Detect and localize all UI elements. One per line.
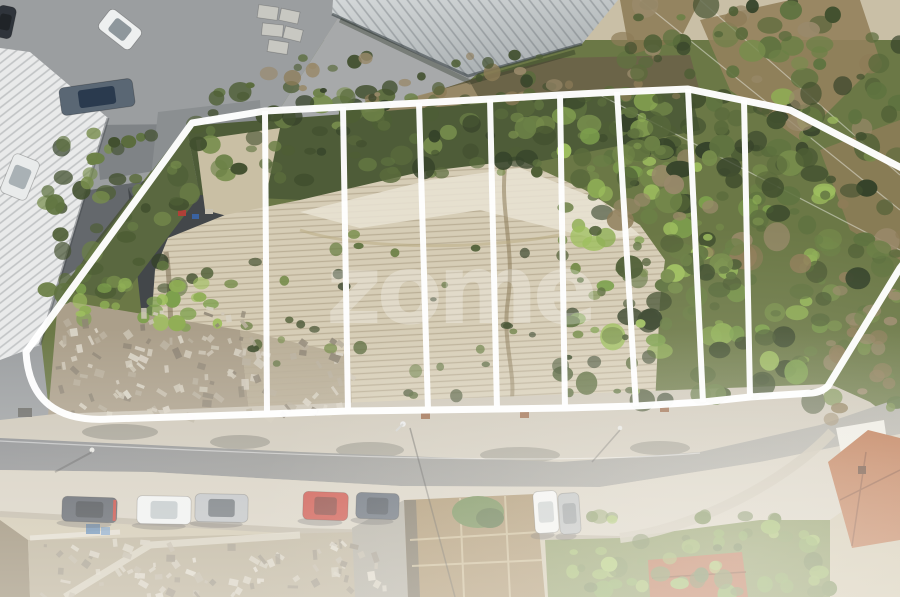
sun-haze <box>0 0 900 597</box>
scene-canvas <box>0 0 900 597</box>
aerial-plot-photo: zome <box>0 0 900 597</box>
